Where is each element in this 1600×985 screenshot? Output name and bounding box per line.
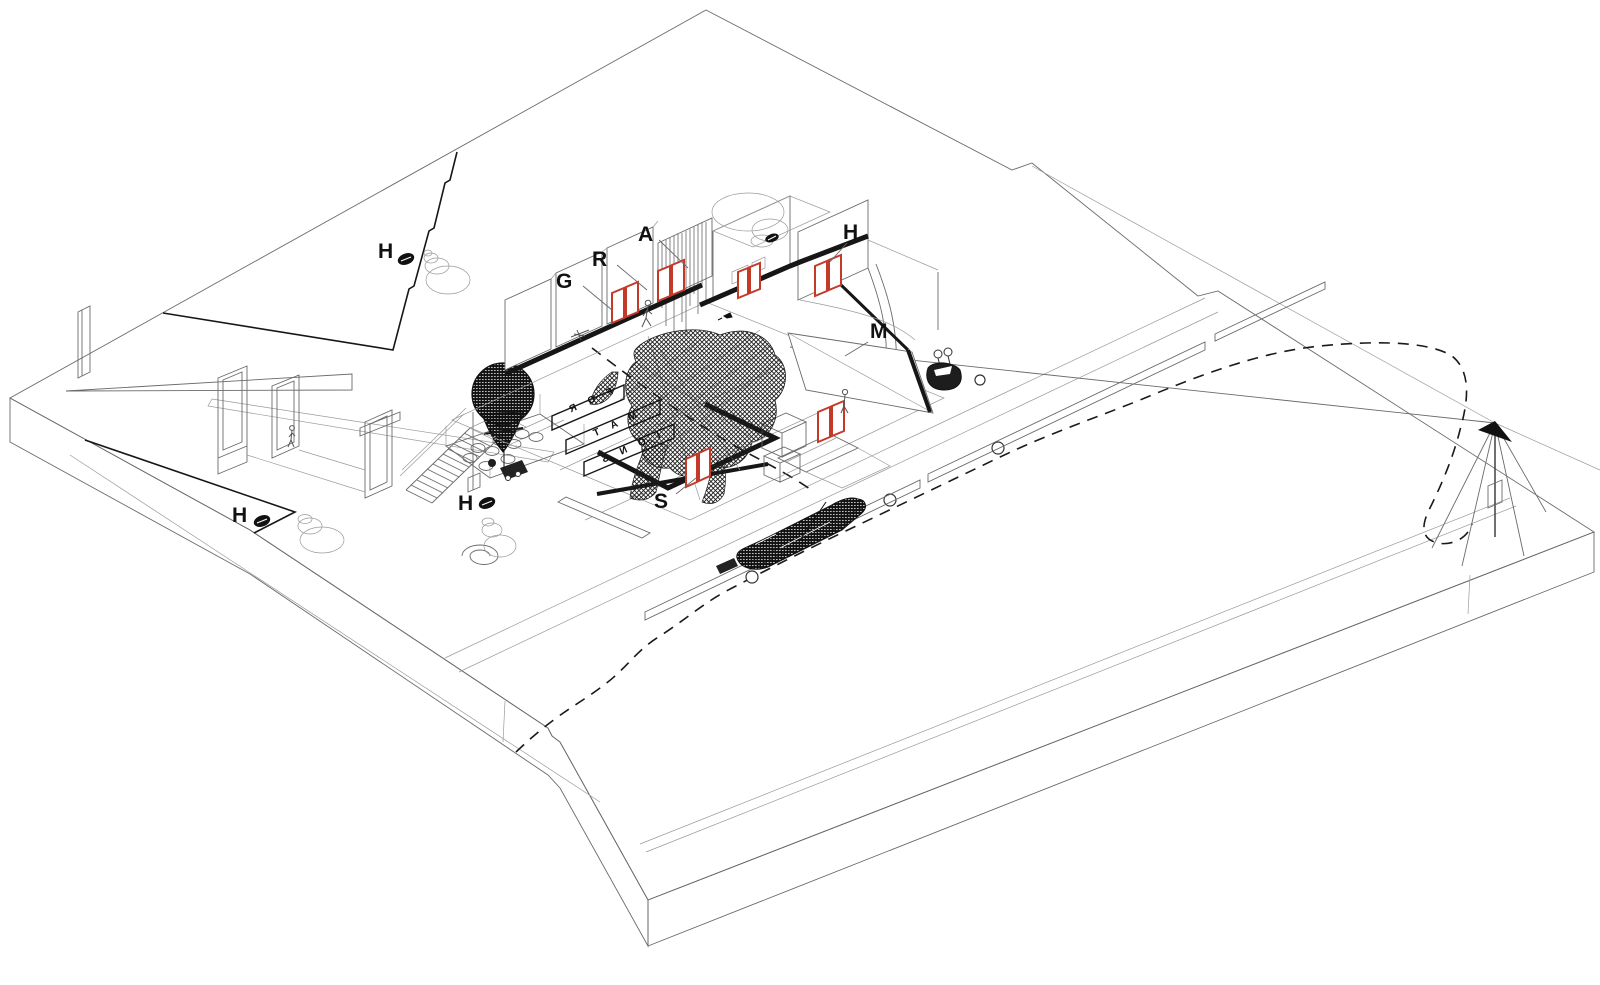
mound-ellipses (482, 518, 516, 557)
buoy-circle (975, 375, 985, 385)
shore-walkway-line (70, 455, 600, 802)
hose-coil (462, 545, 498, 565)
ground-side-left (10, 398, 648, 946)
sight-lines (790, 166, 1600, 470)
marker-deck: H (458, 492, 516, 557)
quay-bridge (778, 434, 890, 488)
bird-icon (718, 313, 732, 320)
marker-shore: H (232, 504, 344, 553)
boat-dinghy (716, 558, 738, 574)
quay-wall (1215, 282, 1325, 341)
vehicle-wheel (944, 348, 952, 356)
screen-curve (800, 300, 915, 340)
axonometric-site-drawing: F O R M A T I O N S (0, 0, 1600, 985)
boat (716, 498, 865, 574)
label-G: G (556, 270, 572, 293)
pole-weight (468, 473, 480, 492)
sign-row-1: F O R (563, 386, 615, 417)
gate-tower-1 (218, 366, 247, 474)
stairs (400, 408, 564, 503)
label-H-wall: H (843, 221, 858, 244)
label-A: A (638, 223, 653, 246)
cart-wheel (506, 476, 511, 481)
balloon-envelope (472, 363, 534, 425)
label-M: M (870, 320, 888, 343)
label-R: R (592, 248, 607, 271)
label-H-deck: H (458, 492, 473, 515)
stele-slab (78, 306, 90, 378)
vehicle-body (927, 363, 961, 390)
cable-vehicle (927, 348, 961, 390)
gate-path-line (247, 455, 365, 492)
label-S: S (654, 490, 668, 513)
quay-wall (928, 342, 1205, 482)
label-H-shore: H (232, 504, 247, 527)
red-door-pair (818, 401, 844, 442)
buoy-circle (992, 442, 1004, 454)
sight-line-beyond-mast (1495, 423, 1600, 470)
winch (488, 459, 496, 467)
mast-guys (1432, 423, 1546, 566)
rear-rail (868, 240, 938, 270)
tethered-balloon (472, 363, 534, 470)
vehicle-wheel (934, 350, 942, 358)
cart-wheel (516, 472, 521, 477)
label-H-field: H (378, 240, 393, 263)
boat-hull (737, 498, 866, 569)
mound-ellipses (298, 515, 344, 554)
ground-wedge (66, 374, 352, 391)
buoy-circle (746, 571, 758, 583)
slab-crack-left (503, 701, 505, 742)
gate-tower-2 (272, 375, 299, 458)
sight-line-edge-to-mast (1032, 166, 1495, 423)
ground-slab (10, 10, 1594, 946)
ground-side-right (648, 532, 1594, 946)
gate-path-line-2 (299, 450, 365, 470)
mound-ellipses (424, 250, 470, 294)
pavilion-building: F O R M A T I O N S (452, 193, 944, 538)
signal-mast (1432, 421, 1546, 566)
bench-slab (558, 497, 650, 538)
fence-upper-field (163, 152, 457, 350)
